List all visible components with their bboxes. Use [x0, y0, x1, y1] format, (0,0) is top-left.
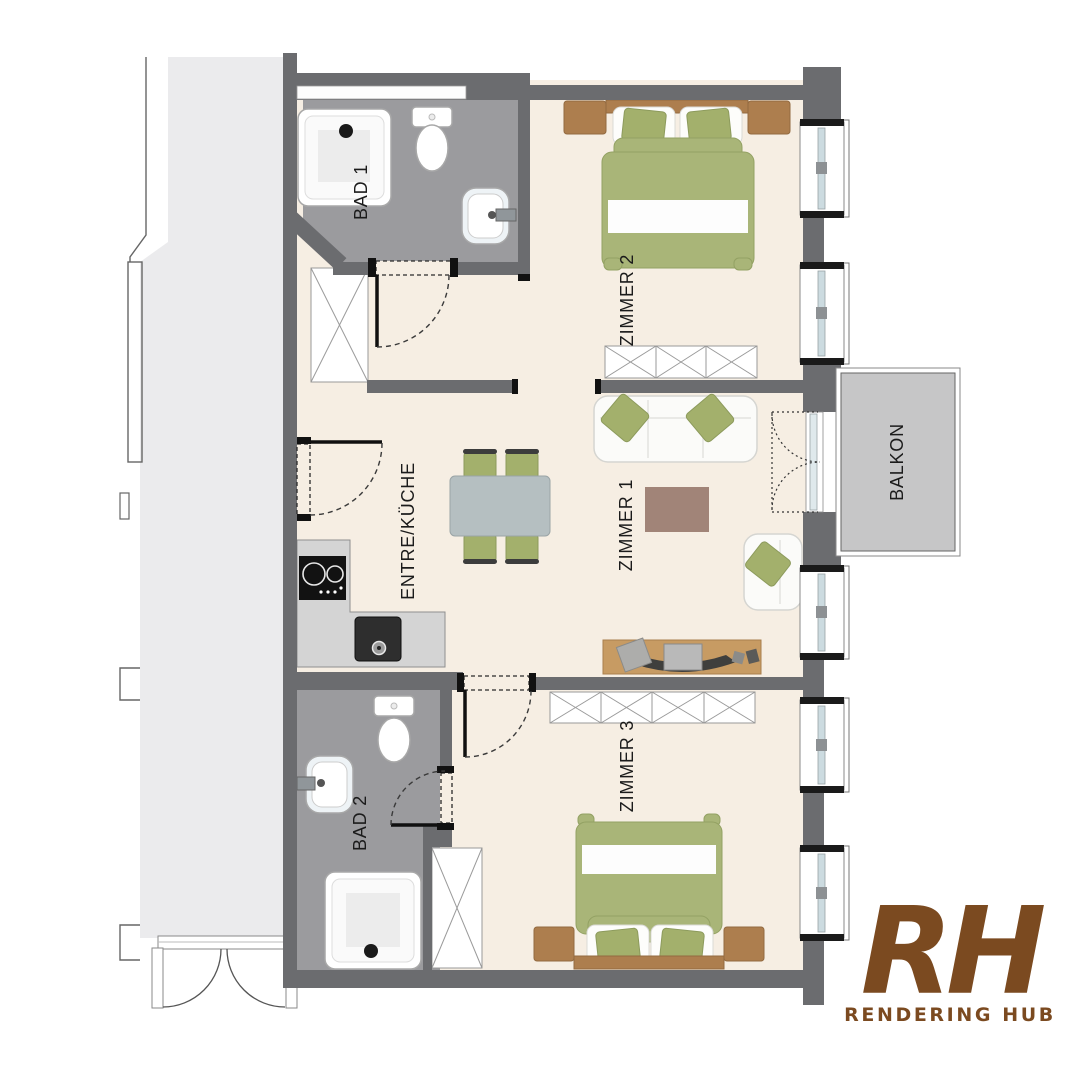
toilet-icon: [374, 696, 414, 762]
room-label-bad2: BAD 2: [350, 795, 370, 851]
sofa-icon: [594, 393, 757, 462]
wardrobe-icon: [550, 692, 755, 723]
window-icon: [800, 262, 849, 365]
logo-monogram: RH: [861, 883, 1044, 1022]
nightstand-icon: [534, 927, 574, 961]
desk-icon: [603, 638, 761, 674]
dining-table-icon: [450, 476, 550, 536]
shower-icon: [298, 109, 391, 206]
floor-plan-image: BAD 1 ZIMMER 2 ENTRE/KÜCHE ZIMMER 1 BALK…: [0, 0, 1080, 1080]
room-label-entre-kueche: ENTRE/KÜCHE: [398, 462, 418, 600]
wardrobe-icon: [605, 346, 757, 378]
wall-slot-window-icon: [297, 86, 466, 99]
nightstand-icon: [724, 927, 764, 961]
shower-icon: [325, 872, 421, 969]
window-icon: [800, 119, 849, 218]
logo-text: RENDERING HUB: [844, 1004, 1056, 1026]
nightstand-icon: [564, 101, 606, 134]
cooktop-icon: [299, 556, 346, 600]
armchair-icon: [744, 534, 802, 610]
room-label-balkon: BALKON: [887, 423, 907, 501]
window-icon: [800, 845, 849, 941]
kitchen-sink-icon: [355, 617, 401, 661]
wardrobe-icon: [432, 848, 482, 968]
washbasin-icon: [462, 188, 516, 244]
rug-icon: [645, 487, 709, 532]
entrance-double-door-icon: [152, 936, 297, 1008]
room-label-zimmer1: ZIMMER 1: [616, 479, 636, 571]
room-label-bad1: BAD 1: [351, 164, 371, 220]
window-icon: [800, 697, 849, 793]
logo: RH RENDERING HUB: [844, 883, 1056, 1026]
wardrobe-icon: [311, 268, 368, 382]
room-label-zimmer3: ZIMMER 3: [617, 720, 637, 812]
nightstand-icon: [748, 101, 790, 134]
stairwell: [120, 57, 283, 960]
window-icon: [800, 565, 849, 660]
floor-plan-page: BAD 1 ZIMMER 2 ENTRE/KÜCHE ZIMMER 1 BALK…: [0, 0, 1080, 1080]
room-label-zimmer2: ZIMMER 2: [617, 254, 637, 346]
monitor-icon: [664, 644, 702, 670]
building-outline: [130, 57, 146, 262]
